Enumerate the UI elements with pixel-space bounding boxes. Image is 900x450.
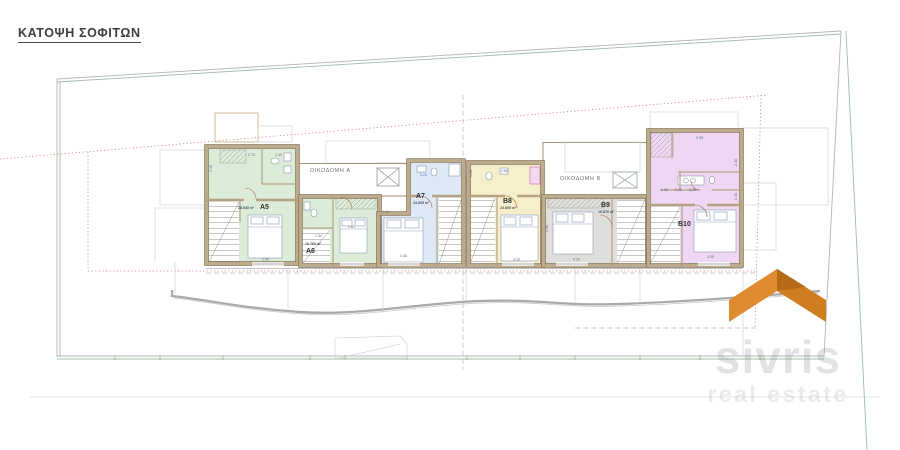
bed-b8 [501,215,538,261]
dim: 2.38 [209,165,213,172]
floor-plan-drawing: ΟΙΚΟΔΟΜΗ Α ΟΙΚΟΔΟΜΗ Β A5 28.935 m² A6 19… [0,0,900,450]
dim: 1.40 [275,153,282,157]
dim: 3.95 [696,136,703,140]
unit-b10-label: B10 [678,221,691,228]
staircase-b10 [650,207,680,264]
ramp-outline [335,336,407,358]
dim: 3.05 [707,255,714,259]
closet-pink [530,167,540,184]
dim: 2.90 [262,258,269,262]
dim: 0.26 [675,188,682,192]
unit-b9-area: 19.876 m² [598,210,615,214]
dim: 1.94 [382,210,389,214]
dim: 2.00 [689,188,696,192]
terrain-lines [172,262,820,315]
floor-plan-page: ΚΑΤΟΨΗ ΣΟΦΙΤΩΝ [0,0,900,450]
skylight-b [613,172,637,188]
dim: 3.45 [400,254,407,258]
dim: 1.45 [734,193,738,200]
bed-b10 [694,210,736,252]
unit-b8-label: B8 [503,198,512,205]
unit-a6-label: A6 [306,248,315,255]
dim: 3.10 [513,258,520,262]
staircase-b9 [617,200,645,264]
bed-b9 [553,212,593,254]
dim: 2.65 [501,169,508,173]
unit-a6-area: 19.760 m² [305,242,322,246]
building-b-label: ΟΙΚΟΔΟΜΗ Β [560,176,601,182]
logo-left-wing [729,269,777,322]
dim: 2.24 [420,173,427,177]
dim: 1.34 [315,234,322,238]
dim: 0.85 [661,188,668,192]
dim: 4.20 [573,258,580,262]
dim: 2.73 [248,153,255,157]
building-a-label: ΟΙΚΟΔΟΜΗ Α [310,168,351,174]
staircase-a7 [439,198,462,264]
unit-a7-area: 23.005 m² [413,201,430,205]
watermark-line2: real estate [707,381,848,407]
dim: 2.81 [348,225,355,229]
dim: 1.08 [469,170,473,177]
unit-b9-label: B9 [601,202,610,209]
watermark: sivris real estate [707,331,848,407]
watermark-line1: sivris [715,331,841,383]
staircase-b8 [470,198,495,264]
staircase-a5 [209,202,239,262]
dim: 2.95 [545,225,549,232]
skylight-a [377,168,399,186]
unit-a5-area: 28.935 m² [238,206,255,210]
unit-a5-label: A5 [260,204,269,211]
dim: 2.36 [734,159,738,166]
bed-a5 [248,215,282,258]
unit-a7-label: A7 [416,193,425,200]
bed-a6 [340,218,367,253]
unit-b8-area: 23.805 m² [500,206,517,210]
